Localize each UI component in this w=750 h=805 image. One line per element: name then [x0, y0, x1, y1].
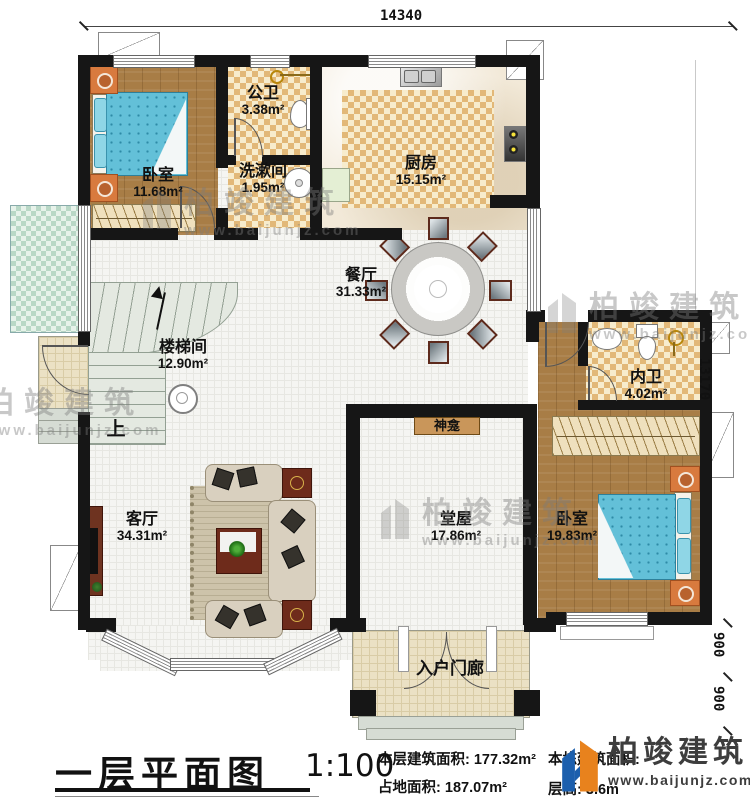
sofa-pillow: [236, 466, 257, 487]
stat-land-area: 占地面积: 187.07m²: [378, 776, 507, 797]
wall: [86, 618, 116, 632]
wall: [78, 55, 90, 205]
fridge: [322, 168, 350, 202]
dimension-tick: [723, 672, 733, 682]
tv: [90, 528, 98, 574]
wall: [214, 228, 228, 240]
window: [250, 55, 290, 68]
dimension-right-lower-1: 900: [710, 632, 726, 657]
stove-burner: [509, 145, 518, 154]
wall: [490, 195, 528, 208]
porch-column: [350, 690, 376, 716]
dining-chair: [428, 217, 449, 240]
wall: [228, 228, 258, 240]
dimension-right-lower-2: 900: [710, 686, 726, 711]
stair-newel: [168, 384, 198, 414]
dining-table: [391, 242, 485, 336]
wall: [78, 228, 178, 240]
wall: [646, 612, 712, 625]
bed-pillow: [94, 134, 107, 168]
towel-ring: [270, 70, 284, 84]
table-plant: [228, 540, 246, 558]
wall: [588, 310, 712, 322]
stat-floor-area: 本层建筑面积: 177.32m²: [378, 748, 536, 769]
bed-pillow: [677, 498, 691, 534]
sink-basin: [421, 70, 436, 83]
wall: [310, 65, 322, 228]
door-leaf: [588, 366, 590, 400]
window: [368, 55, 476, 68]
wall: [78, 330, 90, 346]
sink-basin: [404, 70, 419, 83]
window: [170, 658, 274, 671]
title-underline-thin: [55, 796, 319, 797]
shower-line: [673, 342, 675, 356]
nightstand: [670, 466, 700, 492]
floor-kitchen-checker: [342, 90, 494, 208]
door-leaf: [234, 118, 236, 156]
wardrobe: [552, 416, 700, 456]
wall: [288, 55, 368, 67]
bed-pillow: [94, 98, 107, 132]
wall: [578, 400, 700, 410]
nightstand: [670, 580, 700, 606]
brand-logo-icon: [558, 738, 602, 794]
dimension-tick: [723, 618, 733, 628]
dimension-tick: [723, 726, 733, 736]
room-label-washroom: 洗漱间 1.95m²: [220, 164, 306, 195]
wall: [216, 208, 228, 228]
side-table: [282, 600, 312, 630]
wall: [526, 55, 540, 208]
floor-plan: 14340 13170 900 900: [0, 0, 750, 805]
dining-chair: [428, 341, 449, 364]
porch-step: [366, 728, 516, 740]
room-label-dining: 餐厅 31.33m²: [318, 268, 404, 299]
wall: [300, 228, 322, 240]
stove-burner: [509, 130, 518, 139]
plant: [92, 582, 102, 592]
room-label-bedroom-r: 卧室 19.83m²: [528, 512, 616, 543]
window: [113, 55, 195, 68]
stairs-up-label: 上: [96, 420, 136, 440]
dimension-top-value: 14340: [380, 8, 422, 24]
dimension-line-top: [84, 26, 734, 27]
bed-pillow: [677, 538, 691, 574]
wall: [78, 412, 90, 630]
room-label-hall: 堂屋 17.86m²: [412, 512, 500, 543]
window: [527, 208, 541, 312]
window-sill: [560, 626, 654, 640]
ensuite-basin: [592, 328, 622, 350]
room-label-porch: 入户门廊: [390, 660, 510, 678]
window: [78, 205, 91, 332]
side-balcony: [10, 205, 82, 333]
room-label-living: 客厅 34.31m²: [98, 512, 186, 543]
floor-drain: [668, 330, 684, 346]
brand-logo: 柏竣建筑 www.baijunjz.com: [558, 738, 750, 794]
wall: [526, 322, 539, 342]
room-label-public-bath: 公卫 3.38m²: [228, 86, 298, 117]
door-leaf: [545, 322, 547, 366]
room-label-kitchen: 厨房 15.15m²: [378, 156, 464, 187]
stair-direction-arrow: [151, 285, 165, 299]
dimension-right-value: 13170: [696, 358, 712, 400]
wall: [524, 618, 556, 632]
side-table: [282, 468, 312, 498]
room-label-stairwell: 楼梯间 12.90m²: [128, 340, 238, 371]
room-label-bedroom-tl: 卧室 11.68m²: [110, 168, 206, 199]
title-underline: [55, 788, 310, 792]
dining-chair: [489, 280, 512, 301]
extension-line: [695, 60, 696, 312]
wall: [346, 418, 360, 618]
nightstand: [90, 66, 118, 94]
bed-sheet: [146, 92, 186, 174]
towel-bar: [280, 74, 312, 76]
brand-name: 柏竣建筑: [608, 738, 750, 768]
porch-column: [514, 690, 540, 716]
shrine-label: 神龛: [414, 417, 480, 435]
door-leaf: [42, 345, 88, 347]
wall: [346, 404, 526, 418]
wall: [322, 228, 402, 240]
room-label-ensuite: 内卫 4.02m²: [606, 370, 686, 401]
window: [566, 612, 648, 626]
wall: [216, 65, 228, 168]
brand-url: www.baijunjz.com: [608, 772, 750, 788]
